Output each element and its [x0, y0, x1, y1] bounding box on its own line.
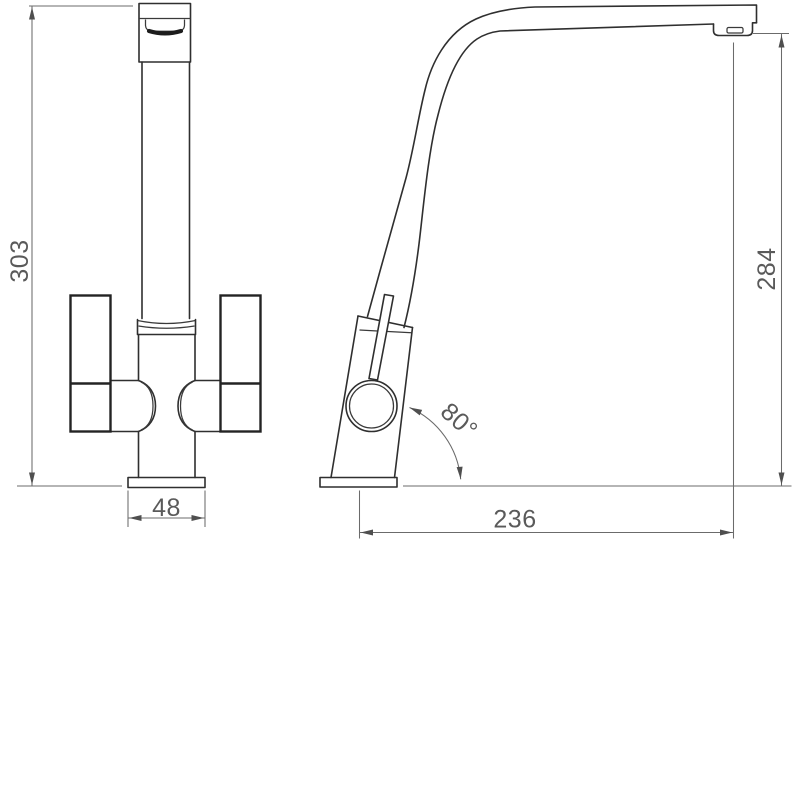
side-view [320, 5, 757, 487]
front-right-handle-connector [195, 381, 220, 432]
side-body-left-edge [331, 316, 358, 478]
dim-284-arrow-top [779, 35, 785, 48]
front-view [71, 4, 261, 488]
front-aerator-screen [149, 31, 181, 33]
dim-236-label: 236 [493, 506, 536, 534]
dim-284: 284 [753, 34, 789, 486]
front-base-plate [128, 478, 205, 488]
side-aerator-outlet [727, 28, 743, 34]
front-collar-rim-upper [138, 321, 196, 324]
side-lever-rod [369, 295, 394, 381]
front-left-handle-connector [111, 381, 139, 432]
dim-48-arrow-left [129, 515, 142, 521]
dim-303-arrow-top [29, 7, 35, 20]
dim-236-arrow-left [361, 530, 374, 536]
dim-80-arrow-upper [408, 405, 422, 416]
side-base-plate [320, 478, 397, 488]
dim-236: 236 [360, 43, 734, 539]
technical-drawing-page: 303 48 236 284 [0, 0, 800, 800]
side-spout-outer-edge [368, 5, 757, 317]
dim-angle-80: 80° [408, 397, 483, 479]
dim-80-arrow-lower [457, 467, 464, 480]
dim-284-arrow-bottom [779, 473, 785, 486]
dim-48-label: 48 [152, 494, 181, 522]
dim-303-label: 303 [6, 239, 34, 282]
dim-80-label: 80° [435, 397, 483, 444]
front-body-sides [139, 335, 196, 478]
side-pivot-outer-circle [346, 381, 397, 432]
front-left-handle-outline [71, 296, 111, 432]
dimensions: 303 48 236 284 [6, 6, 792, 539]
dim-236-arrow-right [720, 530, 733, 536]
dim-303-arrow-bottom [29, 473, 35, 486]
dim-48-arrow-right [192, 515, 205, 521]
dim-284-label: 284 [753, 247, 781, 290]
front-collar-rim-lower [139, 326, 195, 328]
side-spout-inner-edge [404, 24, 714, 328]
dim-48: 48 [128, 491, 205, 528]
front-right-handle-outline [221, 296, 261, 432]
faucet-technical-drawing: 303 48 236 284 [0, 0, 800, 800]
side-pivot-inner-circle [350, 384, 394, 428]
